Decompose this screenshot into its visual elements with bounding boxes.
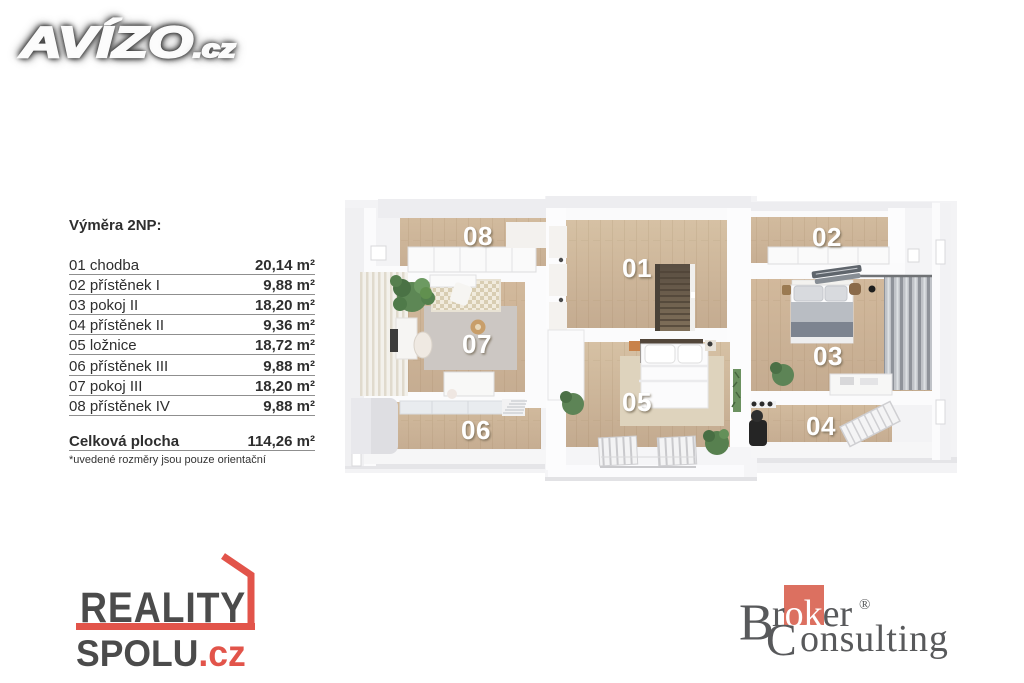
svg-text:®: ®	[859, 597, 870, 613]
svg-text:08: 08	[463, 221, 493, 251]
svg-text:07: 07	[462, 329, 492, 359]
svg-text:06: 06	[461, 415, 491, 445]
svg-text:03: 03	[813, 341, 843, 371]
svg-text:01: 01	[622, 253, 652, 283]
svg-text:05: 05	[622, 387, 652, 417]
svg-text:onsulting: onsulting	[800, 618, 949, 660]
svg-text:04: 04	[806, 411, 836, 441]
svg-text:C: C	[766, 614, 797, 665]
svg-text:02: 02	[812, 222, 842, 252]
